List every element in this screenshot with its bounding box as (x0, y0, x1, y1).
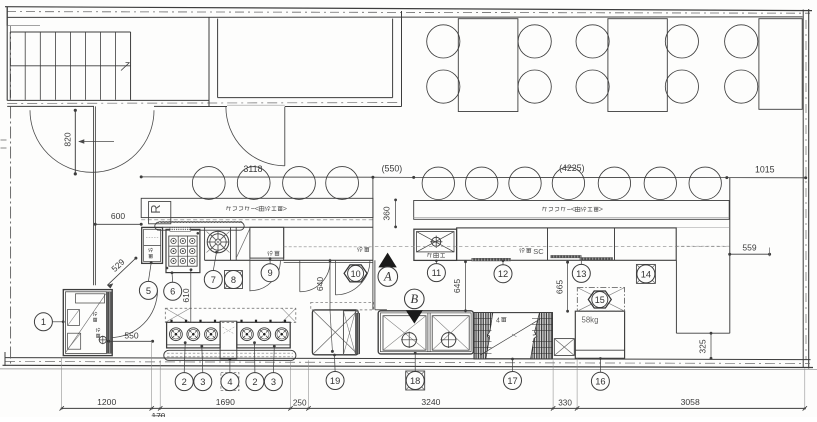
svg-text:>: > (283, 204, 287, 213)
svg-text:16: 16 (595, 377, 605, 387)
svg-text:1690: 1690 (216, 397, 235, 407)
svg-text:2: 2 (182, 377, 187, 387)
svg-text:559: 559 (742, 243, 756, 253)
svg-text:1015: 1015 (755, 165, 775, 175)
svg-text:5: 5 (146, 286, 151, 296)
svg-text:600: 600 (111, 211, 125, 221)
svg-text:330: 330 (558, 398, 572, 407)
svg-text:6: 6 (170, 287, 175, 297)
svg-text:550: 550 (124, 331, 138, 341)
svg-text:15: 15 (595, 295, 605, 305)
svg-text:SC: SC (533, 247, 544, 256)
svg-text:8: 8 (231, 275, 236, 285)
svg-text:610: 610 (181, 288, 191, 302)
svg-text:640: 640 (315, 277, 325, 291)
svg-text:3240: 3240 (421, 397, 440, 407)
svg-text:645: 645 (452, 279, 462, 293)
svg-text:820: 820 (63, 132, 73, 146)
svg-text:360: 360 (382, 206, 392, 220)
svg-text:3058: 3058 (681, 397, 700, 407)
svg-text:<: < (571, 205, 575, 214)
svg-text:<: < (255, 204, 259, 213)
svg-text:4: 4 (496, 318, 500, 325)
svg-text:14: 14 (641, 269, 651, 279)
svg-text:10: 10 (351, 269, 361, 279)
svg-text:2: 2 (252, 377, 257, 387)
svg-text:13: 13 (576, 269, 586, 279)
svg-text:19: 19 (330, 376, 340, 386)
svg-text:665: 665 (554, 280, 564, 294)
svg-text:18: 18 (410, 376, 420, 386)
svg-text:325: 325 (697, 339, 707, 353)
svg-text:12: 12 (498, 269, 508, 279)
svg-text:9: 9 (268, 268, 273, 278)
svg-text:250: 250 (293, 398, 307, 407)
svg-text:3118: 3118 (244, 164, 263, 174)
svg-text:(550): (550) (382, 164, 403, 174)
svg-text:7: 7 (211, 275, 216, 285)
svg-text:4: 4 (227, 377, 232, 387)
svg-text:1: 1 (41, 317, 46, 327)
svg-text:17: 17 (507, 376, 517, 386)
svg-text:R: R (148, 204, 163, 213)
svg-text:B: B (410, 292, 418, 306)
svg-text:11: 11 (432, 268, 442, 278)
svg-text:3: 3 (271, 377, 276, 387)
svg-text:1200: 1200 (97, 397, 116, 407)
svg-text:A: A (383, 270, 392, 284)
svg-text:3: 3 (200, 377, 205, 387)
svg-text:170: 170 (152, 412, 166, 417)
svg-text:>: > (599, 205, 603, 214)
svg-text:58kg: 58kg (582, 316, 599, 325)
